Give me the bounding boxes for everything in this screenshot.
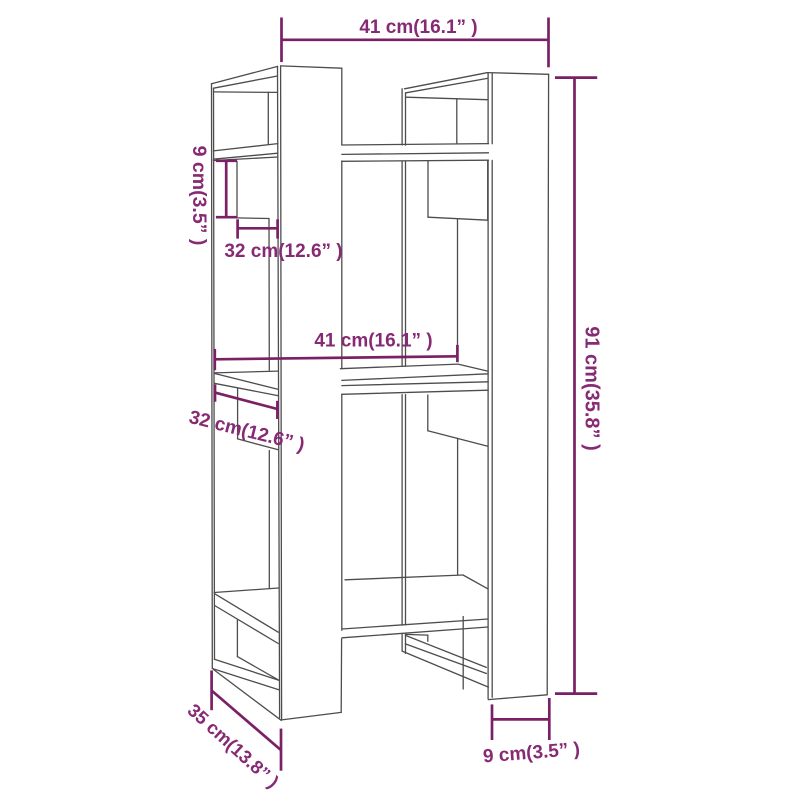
svg-text:91 cm(35.8” ): 91 cm(35.8” ) <box>580 326 602 451</box>
svg-text:9 cm(3.5” ): 9 cm(3.5” ) <box>188 146 210 246</box>
svg-text:32 cm(12.6” ): 32 cm(12.6” ) <box>224 241 342 262</box>
svg-text:41 cm(16.1” ): 41 cm(16.1” ) <box>314 330 432 351</box>
svg-text:41 cm(16.1” ): 41 cm(16.1” ) <box>359 17 477 38</box>
